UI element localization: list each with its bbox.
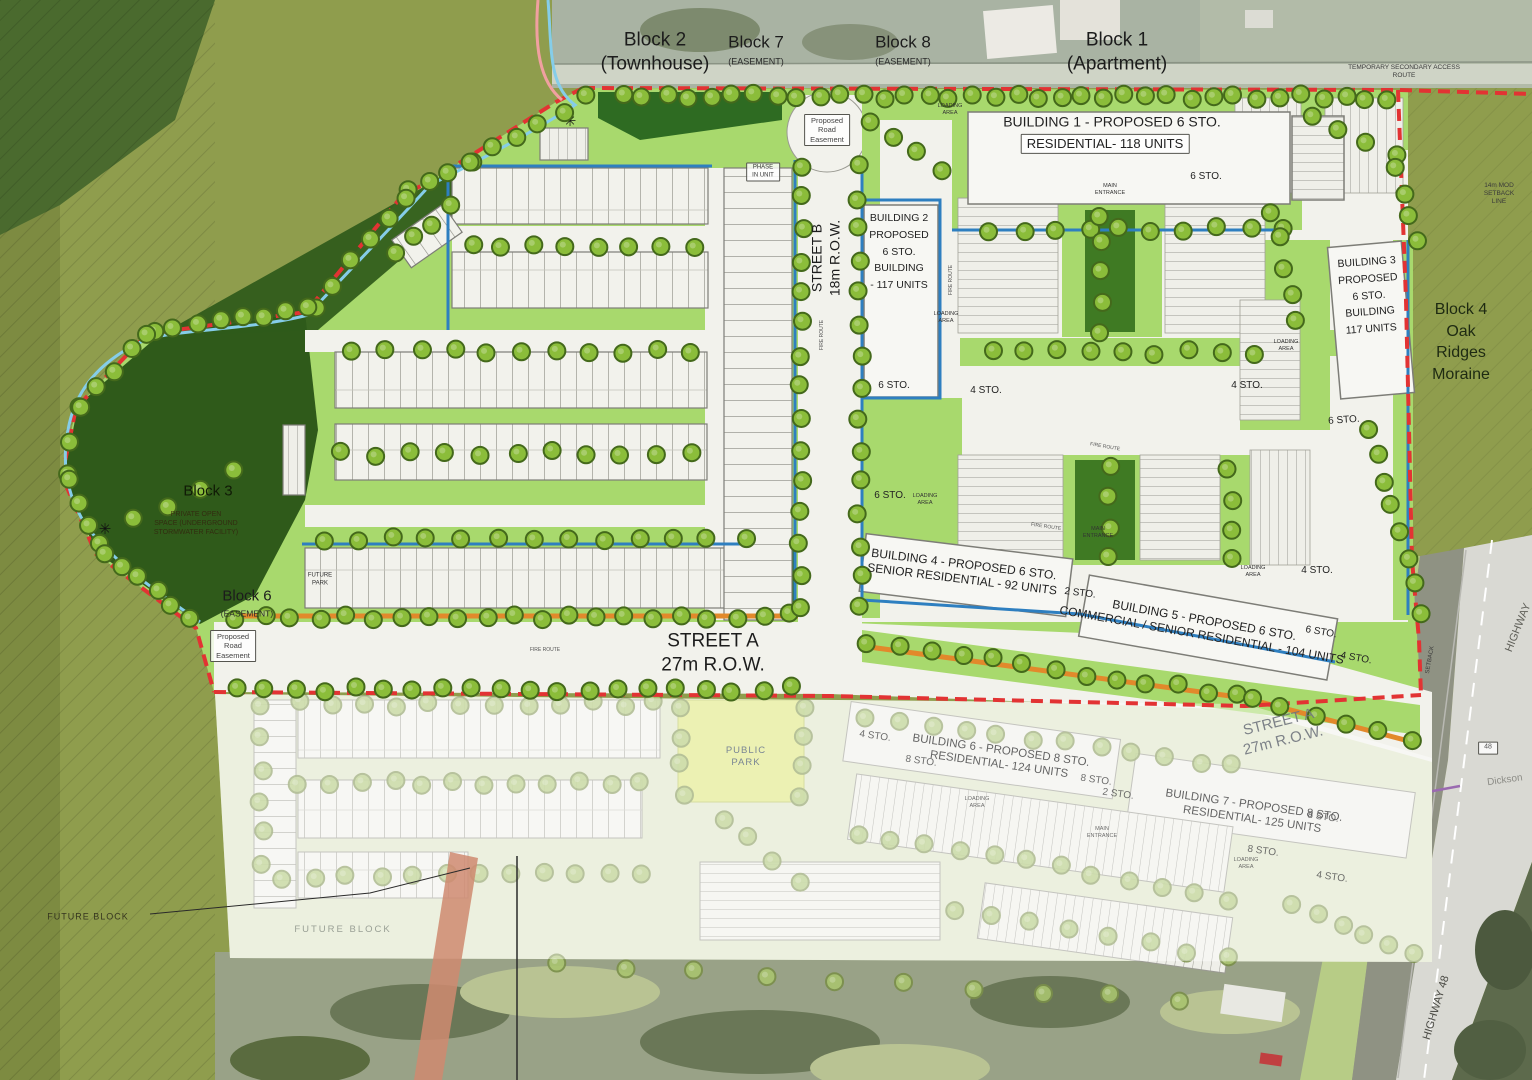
temporary-access-route-label: TEMPORARY SECONDARY ACCESS ROUTE (1340, 64, 1468, 80)
building-3-label: BUILDING 3 PROPOSED 6 STO. BUILDING 117 … (1336, 252, 1401, 340)
loading-area-label: LOADING AREA (965, 796, 990, 810)
street-a-label: STREET A 27m R.O.W. (661, 629, 764, 677)
block-4-label: Block 4 Oak Ridges Moraine (1426, 299, 1497, 385)
storeys-label: 8 STO. (905, 754, 938, 771)
building-2-label: BUILDING 2 PROPOSED 6 STO. BUILDING - 11… (869, 210, 929, 294)
loading-area-label: LOADING AREA (934, 311, 959, 325)
block-6-sub-label: (EASEMENT) (221, 609, 273, 620)
street-a-2-label: STREET A 27m R.O.W. (1237, 704, 1325, 760)
storeys-label: 4 STO. (1301, 565, 1333, 578)
main-entrance-label: MAIN ENTRANCE (1087, 826, 1117, 840)
storeys-label: 4 STO. (859, 729, 892, 746)
storeys-label: 8 STO. (1080, 773, 1113, 790)
block-8-sub-label: (EASEMENT) (875, 56, 931, 67)
storeys-label: 6 STO. (1328, 414, 1360, 429)
fire-route-label: FIRE ROUTE (530, 647, 560, 653)
building-1-title: BUILDING 1 - PROPOSED 6 STO. (1003, 113, 1221, 131)
storeys-label: 8 STO. (1247, 844, 1280, 861)
building-4-label: BUILDING 4 - PROPOSED 6 STO. SENIOR RESI… (866, 545, 1059, 598)
building-5-label: BUILDING 5 - PROPOSED 6 STO. COMMERCIAL … (1058, 588, 1347, 668)
future-park-label: FUTURE PARK (308, 573, 332, 588)
storeys-label: 4 STO. (970, 385, 1002, 398)
setback-line-label: 14m MOD SETBACK LINE (1483, 182, 1516, 206)
highway-48-shield: 48 (1478, 742, 1498, 755)
building-7-label: BUILDING 7 - PROPOSED 8 STO. RESIDENTIAL… (1163, 786, 1344, 839)
setback-rot-label: SETBACK (1425, 646, 1437, 675)
storeys-label: 2 STO. (1102, 787, 1135, 804)
block-7-sub-label: (EASEMENT) (728, 56, 784, 67)
highway-label: HIGHWAY (1503, 602, 1532, 655)
storeys-label: 4 STO. (1316, 870, 1349, 887)
storeys-label: 2 STO. (1064, 586, 1097, 602)
main-entrance-label: MAIN ENTRANCE (1083, 526, 1113, 540)
fire-route-label: FIRE ROUTE (948, 265, 954, 295)
highway-48-label: HIGHWAY 48 (1421, 974, 1454, 1042)
building-1-units: RESIDENTIAL- 118 UNITS (1021, 134, 1190, 154)
block-3-sub-label: PRIVATE OPEN SPACE (UNDERGROUND STORMWAT… (154, 511, 238, 537)
label-layer: Block 2 (Townhouse)Block 7(EASEMENT)Bloc… (0, 0, 1532, 1080)
public-park-label: PUBLIC PARK (726, 745, 766, 769)
storeys-label: 4 STO. (1339, 650, 1372, 668)
fire-route-label: FIRE ROUTE (1031, 522, 1062, 532)
street-b-label: STREET B 18m R.O.W. (809, 220, 844, 296)
storeys-label: 6 STO. (874, 490, 906, 503)
phase-in-unit-label: PHASE IN UNIT (746, 163, 780, 182)
storeys-label: 6 STO. (878, 380, 910, 393)
storeys-label: 6 STO. (1304, 624, 1337, 642)
fire-route-label: FIRE ROUTE (819, 320, 825, 350)
future-block-south-label: FUTURE BLOCK (294, 924, 391, 936)
block-8-label: Block 8 (875, 31, 931, 52)
road-easement-circle-label: Proposed Road Easement (804, 114, 850, 146)
loading-area-label: LOADING AREA (1234, 857, 1259, 871)
block-7-label: Block 7 (728, 31, 784, 52)
main-entrance-label: MAIN ENTRANCE (1095, 183, 1125, 197)
storeys-label: 8 STO. (1307, 810, 1340, 827)
proposed-road-easement-label: Proposed Road Easement (210, 630, 256, 662)
fire-route-label: FIRE ROUTE (1090, 441, 1121, 452)
future-block-west-label: FUTURE BLOCK (47, 911, 129, 922)
building-6-label: BUILDING 6 - PROPOSED 8 STO. RESIDENTIAL… (910, 731, 1091, 784)
block-2-label: Block 2 (Townhouse) (601, 28, 710, 76)
storeys-label: 6 STO. (1190, 171, 1222, 184)
loading-area-label: LOADING AREA (938, 103, 963, 117)
storeys-label: 4 STO. (1231, 380, 1263, 393)
block-3-label: Block 3 (183, 483, 232, 502)
loading-area-label: LOADING AREA (913, 493, 938, 507)
loading-area-label: LOADING AREA (1241, 565, 1266, 579)
block-1-label: Block 1 (Apartment) (1067, 28, 1167, 76)
loading-area-label: LOADING AREA (1274, 339, 1299, 353)
dickson-label: Dickson (1487, 772, 1524, 789)
site-plan: ✳ ✳ Block 2 (Townhouse)Block 7(EASEMENT)… (0, 0, 1532, 1080)
block-6-label: Block 6 (222, 588, 271, 607)
